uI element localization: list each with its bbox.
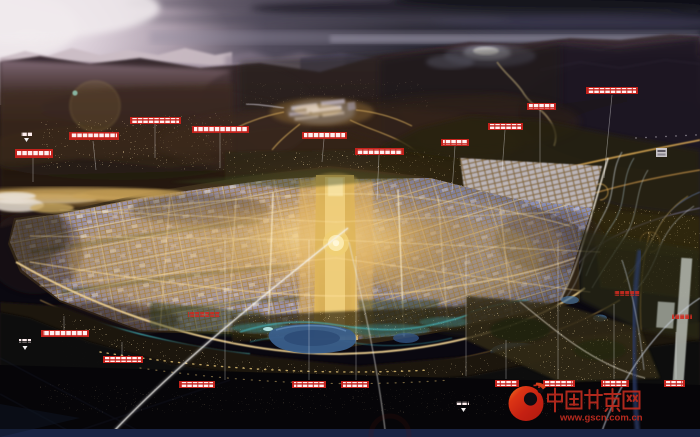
svg-text:www.gscn.com.cn: www.gscn.com.cn	[559, 413, 643, 424]
